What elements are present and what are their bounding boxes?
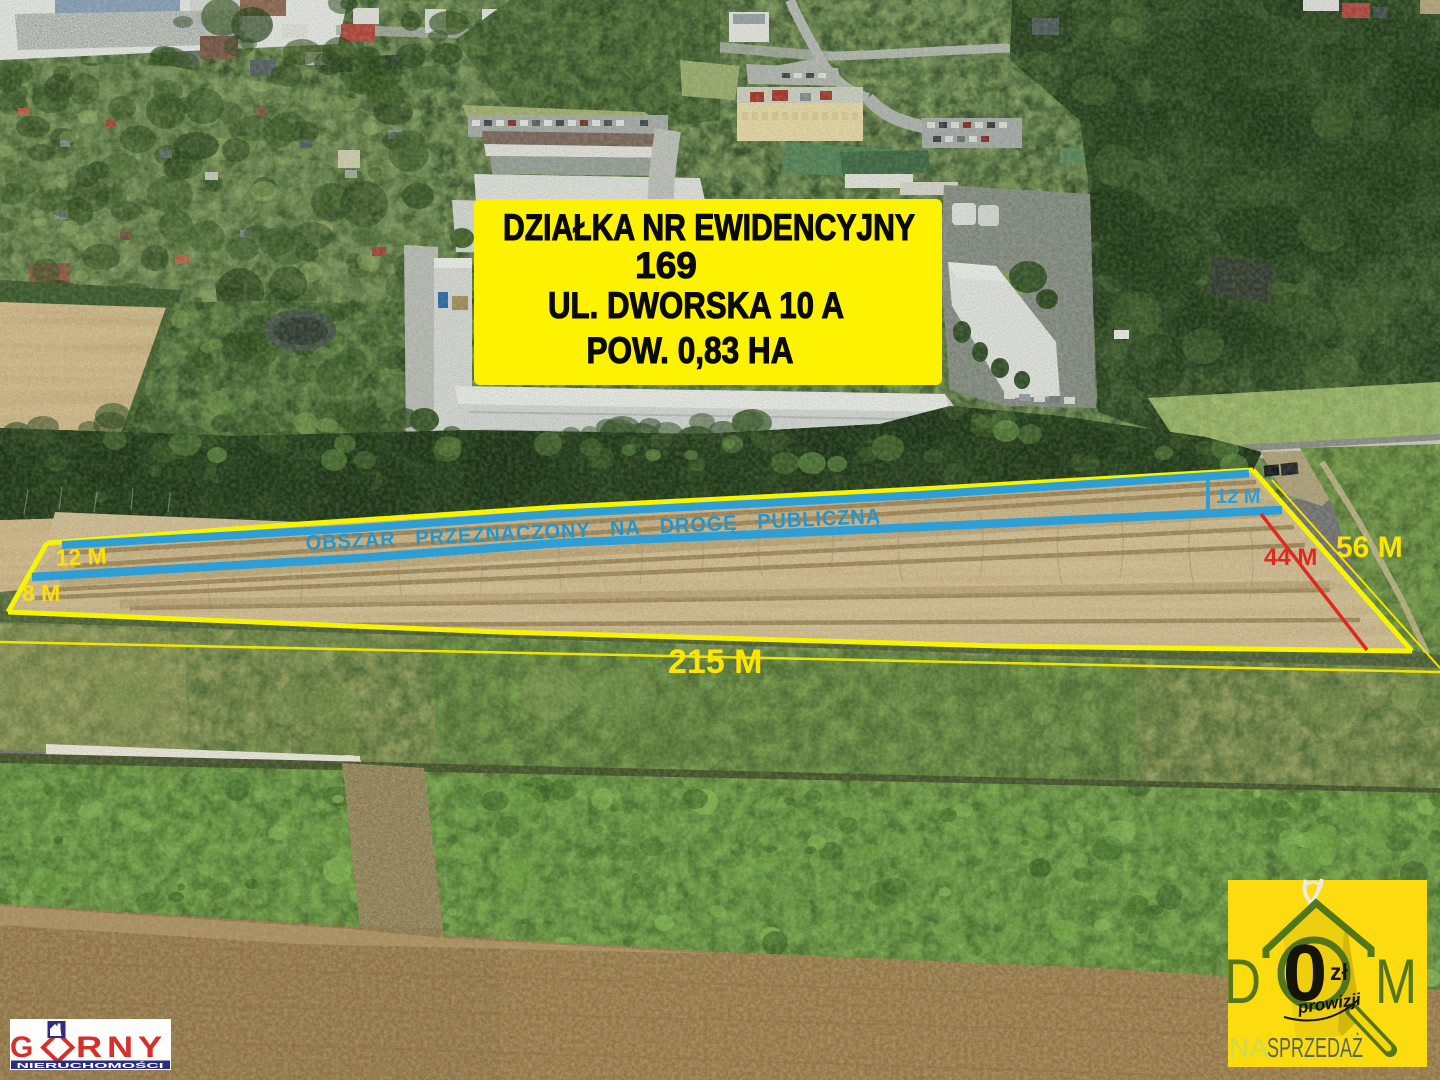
svg-text:SPRZEDAŻ: SPRZEDAŻ <box>1267 1032 1363 1063</box>
svg-text:RNY: RNY <box>76 1031 167 1064</box>
svg-text:zł: zł <box>1330 959 1349 985</box>
svg-text:8 M: 8 M <box>22 580 60 606</box>
svg-text:DZIAŁKA NR EWIDENCYJNY: DZIAŁKA NR EWIDENCYJNY <box>503 207 915 248</box>
svg-text:G: G <box>10 1031 33 1064</box>
svg-text:12 M: 12 M <box>1216 486 1260 508</box>
svg-text:POW. 0,83 HA: POW. 0,83 HA <box>587 330 794 371</box>
svg-text:44 M: 44 M <box>1264 544 1317 571</box>
svg-text:UL. DWORSKA 10 A: UL. DWORSKA 10 A <box>548 285 844 326</box>
svg-text:M: M <box>1375 947 1417 1017</box>
svg-text:169: 169 <box>635 245 697 286</box>
svg-text:215 M: 215 M <box>668 643 763 681</box>
svg-text:12 M: 12 M <box>55 542 107 571</box>
svg-text:56 M: 56 M <box>1336 531 1403 564</box>
svg-text:NIERUCHOMOŚCI: NIERUCHOMOŚCI <box>17 1061 164 1070</box>
svg-text:NA: NA <box>1229 1032 1268 1063</box>
svg-text:D: D <box>1224 947 1261 1017</box>
